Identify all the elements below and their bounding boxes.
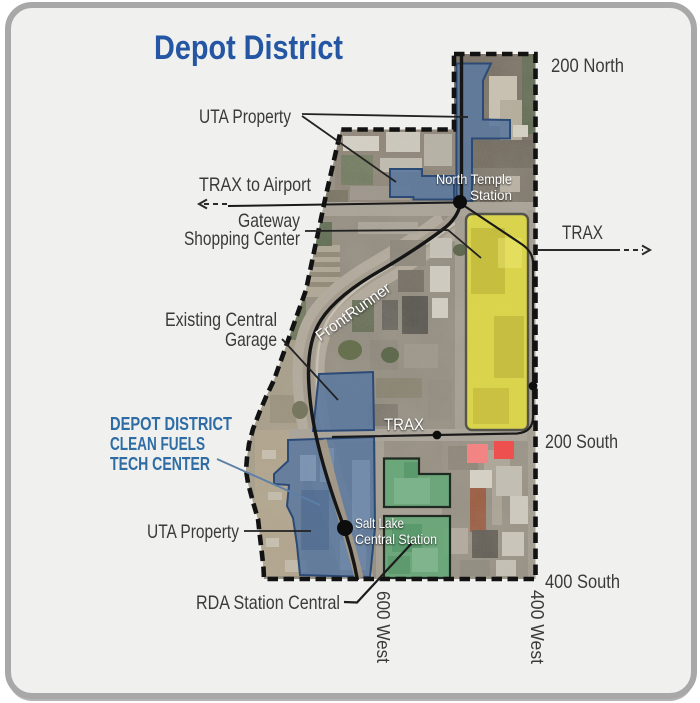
svg-text:Shopping Center: Shopping Center (184, 228, 300, 250)
svg-text:Existing Central: Existing Central (165, 309, 277, 331)
svg-text:TRAX: TRAX (384, 415, 424, 434)
svg-text:RDA Station Central: RDA Station Central (196, 592, 340, 614)
svg-text:DEPOT DISTRICT: DEPOT DISTRICT (110, 413, 233, 434)
svg-text:UTA Property: UTA Property (147, 521, 239, 543)
svg-text:600 West: 600 West (373, 591, 394, 663)
svg-text:North Temple: North Temple (436, 171, 512, 187)
svg-text:UTA Property: UTA Property (199, 106, 291, 128)
svg-text:TRAX: TRAX (562, 222, 603, 244)
svg-text:Central Station: Central Station (355, 531, 437, 547)
svg-text:TECH CENTER: TECH CENTER (110, 453, 210, 474)
svg-text:200 South: 200 South (545, 431, 618, 453)
svg-text:Depot District: Depot District (154, 29, 343, 67)
svg-text:400 South: 400 South (545, 571, 620, 593)
svg-text:Station: Station (470, 187, 512, 203)
svg-text:Garage: Garage (225, 329, 277, 351)
svg-text:400 West: 400 West (527, 590, 548, 664)
svg-text:TRAX to Airport: TRAX to Airport (199, 174, 311, 196)
svg-text:Salt Lake: Salt Lake (355, 515, 404, 531)
svg-text:CLEAN FUELS: CLEAN FUELS (110, 433, 205, 454)
svg-text:200 North: 200 North (551, 55, 624, 77)
